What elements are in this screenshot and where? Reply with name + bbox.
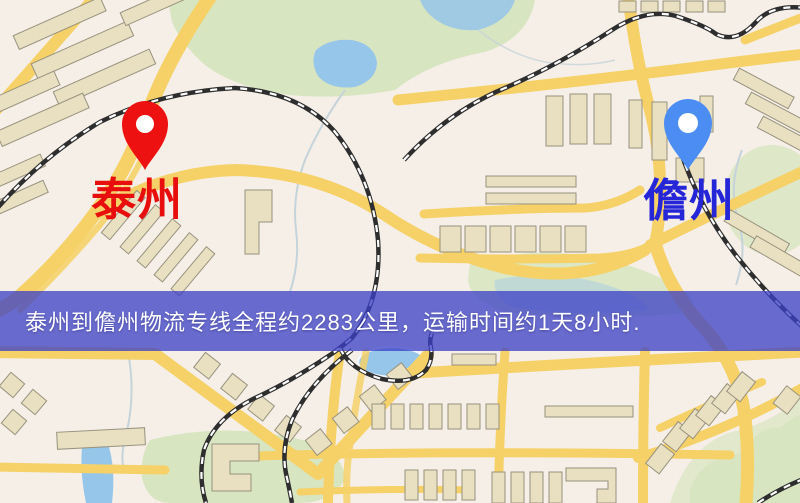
destination-label: 儋州 [643, 179, 735, 224]
route-info-banner: 泰州到儋州物流专线全程约2283公里，运输时间约1天8小时. [0, 291, 800, 351]
origin-label: 泰州 [91, 178, 183, 223]
map-background [0, 0, 800, 503]
map-canvas: 泰州 儋州 泰州到儋州物流专线全程约2283公里，运输时间约1天8小时. [0, 0, 800, 503]
route-info-text: 泰州到儋州物流专线全程约2283公里，运输时间约1天8小时. [0, 305, 641, 337]
